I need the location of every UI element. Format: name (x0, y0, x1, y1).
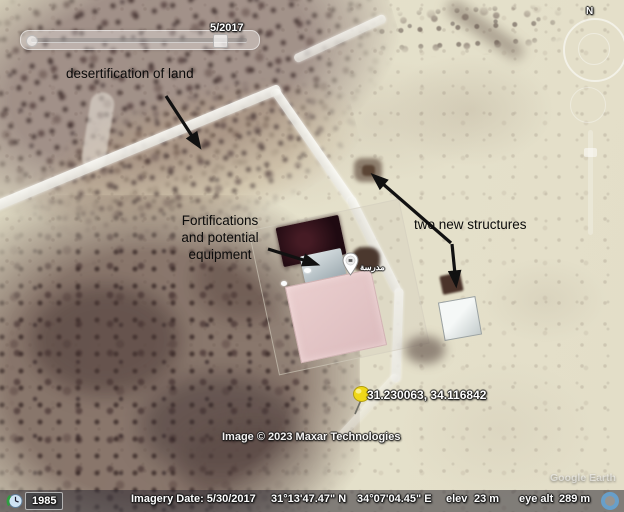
pushpin-coordinates-label: 31.230063, 34.116842 (367, 388, 486, 402)
compass-inner-ring[interactable] (578, 33, 610, 65)
elevation-label: elev (446, 493, 467, 505)
annotation-fortifications: Fortifications and potential equipment (166, 212, 274, 263)
time-slider-date-label: 5/2017 (210, 22, 244, 34)
status-bar: 1985 Imagery Date: 5/30/2017 31°13'47.47… (0, 490, 624, 512)
placemark-label: مدرسة (360, 262, 385, 273)
historical-imagery-clock-icon[interactable] (6, 492, 24, 510)
zoom-slider-handle[interactable] (584, 148, 597, 157)
placemark-pin-icon[interactable] (342, 252, 359, 277)
annotation-desertification: desertification of land (66, 65, 194, 82)
zoom-slider[interactable] (588, 130, 593, 235)
vehicle-dot (281, 281, 287, 286)
copyright-watermark: Image © 2023 Maxar Technologies (222, 431, 400, 443)
latitude-text: 31°13'47.47" N (271, 493, 346, 505)
longitude-text: 34°07'04.45" E (357, 493, 432, 505)
eye-altitude-label: eye alt (519, 493, 553, 505)
elevation-value: 23 m (474, 493, 499, 505)
annotation-new-structures: two new structures (414, 216, 527, 233)
time-slider[interactable]: 5/2017 (20, 30, 260, 50)
vehicle-dot (304, 268, 311, 273)
time-slider-start-knob[interactable] (26, 35, 38, 47)
google-earth-window: desertification of land Fortifications a… (0, 0, 624, 512)
google-earth-watermark: Google Earth (550, 472, 616, 484)
compass-north-label: N (586, 6, 593, 17)
annotation-fortifications-line1: Fortifications (166, 212, 274, 229)
timeline-start-year-badge: 1985 (25, 492, 63, 510)
eye-altitude-value: 289 m (559, 493, 590, 505)
new-structure-north-core (362, 165, 375, 176)
annotation-fortifications-line2: and potential (166, 229, 274, 246)
annotation-fortifications-line3: equipment (166, 246, 274, 263)
time-slider-handle[interactable] (213, 34, 228, 48)
imagery-date-text: Imagery Date: 5/30/2017 (131, 493, 256, 505)
streaming-indicator-icon (601, 492, 619, 510)
white-roof-building (438, 296, 482, 341)
move-joystick[interactable] (570, 87, 606, 123)
shadow-patch (405, 336, 445, 364)
